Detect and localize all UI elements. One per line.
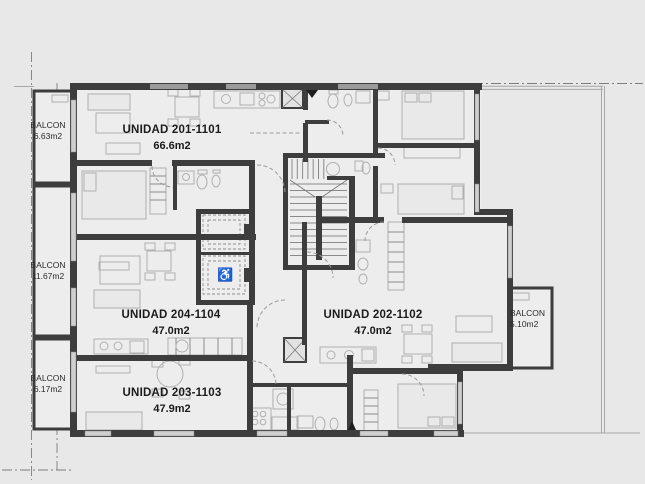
unit-202-label: UNIDAD 202-1102 47.0m2 xyxy=(324,306,423,338)
balcony-2-label: BALCON 11.67m2 xyxy=(31,260,66,282)
balcony-4-label: BALCON 5.10m2 xyxy=(510,308,545,330)
balcony-4-name: BALCON xyxy=(510,308,545,318)
unit-203-area: 47.9m2 xyxy=(123,402,222,416)
balcony-3-area: 6.17m2 xyxy=(34,384,62,394)
unit-204-area: 47.0m2 xyxy=(122,324,221,338)
unit-204-label: UNIDAD 204-1104 47.0m2 xyxy=(122,306,221,338)
balcony-2-area: 11.67m2 xyxy=(32,271,64,281)
balcony-4-area: 5.10m2 xyxy=(510,319,538,329)
balcony-1-area: 6.63m2 xyxy=(34,131,62,141)
unit-202-name: UNIDAD 202-1102 xyxy=(324,306,423,324)
unit-201-label: UNIDAD 201-1101 66.6m2 xyxy=(123,121,222,153)
unit-203-label: UNIDAD 203-1103 47.9m2 xyxy=(123,384,222,416)
floor-plan: UNIDAD 201-1101 66.6m2 UNIDAD 202-1102 4… xyxy=(0,0,645,484)
balcony-3-label: BALCON 6.17m2 xyxy=(31,373,66,395)
unit-201-area: 66.6m2 xyxy=(123,139,222,153)
unit-201-name: UNIDAD 201-1101 xyxy=(123,121,222,139)
unit-203-name: UNIDAD 203-1103 xyxy=(123,384,222,402)
balcony-2-name: BALCON xyxy=(31,260,66,270)
unit-202-area: 47.0m2 xyxy=(324,324,423,338)
balcony-1-name: BALCON xyxy=(31,120,66,130)
unit-204-name: UNIDAD 204-1104 xyxy=(122,306,221,324)
balcony-3-name: BALCON xyxy=(31,373,66,383)
wheelchair-icon: ♿ xyxy=(217,268,233,281)
floor-plan-drawing xyxy=(0,0,645,484)
balcony-1-label: BALCON 6.63m2 xyxy=(31,120,66,142)
